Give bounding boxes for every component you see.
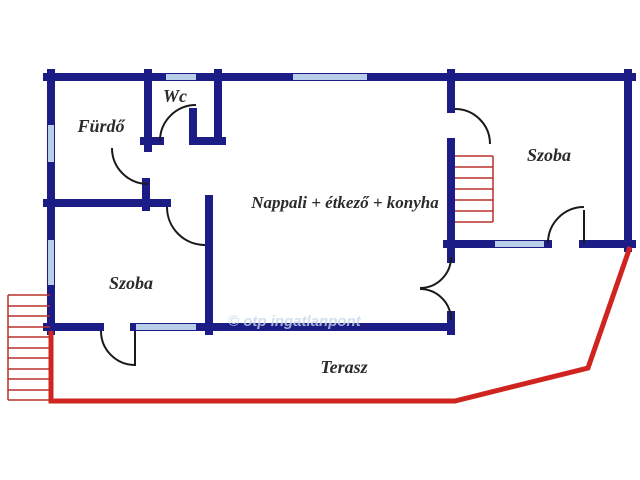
- double-door-upper-arc: [420, 257, 451, 288]
- stairs-right-steps: [455, 156, 493, 222]
- label-wc: Wc: [163, 86, 187, 106]
- watermark-text: © otp ingatlanpont: [228, 313, 362, 330]
- door-szoba-right-terrace-arc: [548, 207, 584, 243]
- label-szoba-right: Szoba: [527, 145, 571, 165]
- label-szoba-left: Szoba: [109, 273, 153, 293]
- label-furdo: Fürdő: [76, 116, 125, 136]
- stairs-left-steps: [8, 295, 50, 400]
- stairs-left: [8, 295, 50, 400]
- door-entrance-arc: [101, 331, 135, 365]
- door-szoba-right-entry: [455, 109, 490, 144]
- stairs-right: [455, 156, 493, 222]
- label-nappali: Nappali + étkező + konyha: [250, 193, 439, 212]
- floor-plan-page: Fürdő Wc Nappali + étkező + konyha Szoba…: [0, 0, 640, 480]
- double-door-lower-arc: [420, 289, 451, 320]
- floor-plan-svg: Fürdő Wc Nappali + étkező + konyha Szoba…: [0, 0, 640, 480]
- door-szoba-left: [167, 207, 205, 245]
- label-terasz: Terasz: [320, 357, 367, 377]
